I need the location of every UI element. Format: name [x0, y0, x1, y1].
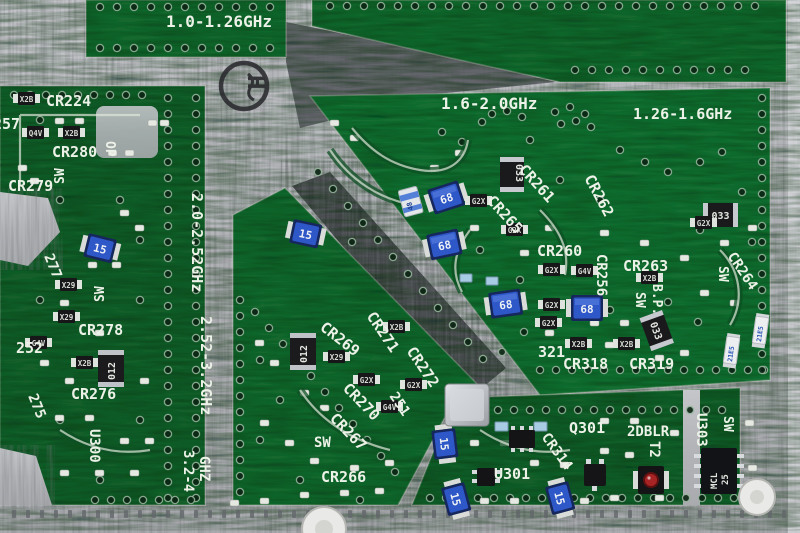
chip-marking-code: G2X [697, 219, 711, 228]
ref-252: 252 [16, 339, 43, 357]
solder-pad [530, 460, 539, 466]
solder-pad [385, 460, 394, 466]
via [164, 110, 171, 117]
via [164, 318, 171, 325]
ref-u301: U301 [494, 465, 530, 483]
ref-sw: SW [632, 292, 647, 308]
edge-plating-dash [26, 510, 30, 518]
via [164, 126, 171, 133]
via [748, 238, 755, 245]
via [266, 44, 273, 51]
small-cap [534, 422, 547, 431]
via [712, 366, 719, 373]
solder-pad [520, 250, 529, 256]
edge-plating-dash [516, 510, 520, 518]
mcl-doubler-ic: MCL 25 [694, 448, 744, 494]
ic-marking: MCL [710, 472, 720, 489]
edge-plating-dash [544, 510, 548, 518]
solder-pad [748, 225, 757, 231]
via [113, 44, 120, 51]
via [656, 66, 663, 73]
band-label-ghz: GHZ [196, 456, 212, 481]
via [91, 496, 98, 503]
edge-plating-dash [110, 510, 114, 518]
cap-value: 68 [498, 298, 513, 313]
via [574, 406, 581, 413]
via [682, 494, 689, 501]
pcb-photograph: 68 68 68 68 15 15 [0, 0, 800, 533]
via [90, 91, 97, 98]
ref-cr276: CR276 [71, 385, 116, 403]
via [307, 372, 314, 379]
via [198, 3, 205, 10]
via [666, 494, 673, 501]
solder-pad [545, 330, 554, 336]
via [479, 2, 486, 9]
edge-plating-dash [390, 510, 394, 518]
via [639, 66, 646, 73]
via [616, 146, 623, 153]
via [164, 494, 171, 501]
ref-cr318: CR318 [563, 355, 608, 373]
chip-marking-code: Q4V [29, 129, 43, 138]
via [758, 206, 765, 213]
edge-plating-dash [96, 510, 100, 518]
via [618, 494, 625, 501]
via [479, 355, 486, 362]
cap-value: 15 [437, 437, 452, 452]
via [520, 328, 527, 335]
via [329, 185, 336, 192]
via [96, 44, 103, 51]
solder-pad [655, 495, 664, 501]
via [530, 2, 537, 9]
solder-pad [375, 488, 384, 494]
edge-plating-dash [726, 510, 730, 518]
edge-plating-dash [124, 510, 128, 518]
via [266, 3, 273, 10]
ref-u300: U300 [86, 429, 102, 463]
via [236, 424, 243, 431]
edge-plating-dash [488, 510, 492, 518]
chip-marking-code: X2B [572, 340, 586, 349]
via [638, 406, 645, 413]
via [136, 236, 143, 243]
chip-marking-code: X29 [330, 353, 344, 362]
small-cap [486, 277, 498, 285]
ref-cr279: CR279 [8, 177, 53, 195]
via [634, 494, 641, 501]
via [551, 108, 558, 115]
ref-321: 321 [538, 343, 565, 361]
via [164, 414, 171, 421]
via [192, 430, 199, 437]
solder-pad [745, 420, 754, 426]
solder-pad [605, 342, 614, 348]
ref-op: OP [102, 141, 117, 157]
capacitor-68: 68 [566, 295, 608, 321]
ref-sw: SW [53, 168, 68, 184]
edge-plating-dash [404, 510, 408, 518]
chip-marking-code: G2X [545, 266, 559, 275]
via [394, 2, 401, 9]
plate-edge-highlight [788, 0, 800, 533]
via [666, 2, 673, 9]
ic-marking: 25 [721, 474, 731, 485]
via [428, 2, 435, 9]
via [96, 3, 103, 10]
solder-pad [330, 120, 339, 126]
ref-sw: SW [715, 266, 730, 282]
edge-plating-dash [670, 510, 674, 518]
ref-t2: T2 [646, 441, 662, 458]
via [566, 103, 573, 110]
ref-q301: Q301 [569, 419, 605, 437]
solder-pad [95, 470, 104, 476]
solder-pad [270, 360, 279, 366]
via [649, 2, 656, 9]
edge-plating-dash [782, 510, 786, 518]
inspection-stamp: H [221, 63, 270, 109]
via [232, 44, 239, 51]
via [192, 174, 199, 181]
via [192, 110, 199, 117]
edge-plating-dash [600, 510, 604, 518]
via [164, 366, 171, 373]
edge-plating-dash [194, 510, 198, 518]
via [130, 3, 137, 10]
solder-pad [610, 495, 619, 501]
ref-sw: SW [93, 286, 108, 302]
ref-cr319: CR319 [629, 355, 674, 373]
chip-marking-code: G2X [407, 381, 421, 390]
via [164, 206, 171, 213]
ref-sw: SW [314, 435, 331, 451]
solder-pad [700, 290, 709, 296]
via [181, 44, 188, 51]
via [641, 158, 648, 165]
via [296, 476, 303, 483]
via [236, 488, 243, 495]
edge-plating-dash [502, 510, 506, 518]
via [198, 44, 205, 51]
via [700, 2, 707, 9]
edge-plating-dash [152, 510, 156, 518]
via [615, 2, 622, 9]
ref-cr280: CR280 [52, 143, 97, 161]
via [758, 286, 765, 293]
solder-pad [600, 448, 609, 454]
solder-pad [470, 440, 479, 446]
via [598, 2, 605, 9]
via [147, 44, 154, 51]
edge-plating-dash [250, 510, 254, 518]
solder-pad [40, 360, 49, 366]
via [164, 44, 171, 51]
via [758, 158, 765, 165]
edge-plating-dash [166, 510, 170, 518]
via [744, 366, 751, 373]
via [130, 44, 137, 51]
chip-marking-code: G2X [472, 197, 486, 206]
via [758, 254, 765, 261]
edge-plating-dash [628, 510, 632, 518]
solder-pad [120, 438, 129, 444]
via [547, 2, 554, 9]
edge-plating-dash [586, 510, 590, 518]
via [164, 350, 171, 357]
via [116, 196, 123, 203]
solder-pad [625, 452, 634, 458]
via [526, 136, 533, 143]
via [344, 202, 351, 209]
via [249, 3, 256, 10]
solder-pad [255, 340, 264, 346]
via [741, 66, 748, 73]
via [236, 408, 243, 415]
edge-plating-dash [432, 510, 436, 518]
via [164, 398, 171, 405]
edge-plating-dash [362, 510, 366, 518]
via [696, 158, 703, 165]
edge-plating-dash [684, 510, 688, 518]
via [236, 440, 243, 447]
via [690, 66, 697, 73]
small-cap [460, 274, 472, 282]
via [434, 304, 441, 311]
via [348, 238, 355, 245]
solder-pad [85, 415, 94, 421]
via [602, 494, 609, 501]
chip-marking-code: G2X [542, 319, 556, 328]
solder-pad [470, 225, 479, 231]
solder-pad [135, 225, 144, 231]
solder-pad [75, 118, 84, 124]
standoff-center [750, 490, 764, 504]
resistor-012: 012 [98, 350, 124, 387]
via [738, 188, 745, 195]
via [522, 494, 529, 501]
via [758, 174, 765, 181]
chip-marking-code: G2X [360, 376, 374, 385]
via [654, 406, 661, 413]
via [164, 382, 171, 389]
via [490, 494, 497, 501]
via [411, 2, 418, 9]
via [462, 2, 469, 9]
via [510, 406, 517, 413]
via [680, 366, 687, 373]
edge-plating-dash [698, 510, 702, 518]
via [249, 44, 256, 51]
via [96, 476, 103, 483]
edge-plating-dash [12, 510, 16, 518]
solder-pad [65, 378, 74, 384]
via [758, 190, 765, 197]
via [136, 296, 143, 303]
via [236, 472, 243, 479]
ref-cr260: CR260 [537, 242, 582, 260]
via [164, 254, 171, 261]
ref-257: 257 [0, 115, 20, 133]
edge-plating-dash [222, 510, 226, 518]
edge-plating-dash [712, 510, 716, 518]
via [516, 276, 523, 283]
via [717, 2, 724, 9]
via [513, 2, 520, 9]
solder-pad [260, 498, 269, 504]
via [164, 478, 171, 485]
via [734, 2, 741, 9]
edge-plating-dash [278, 510, 282, 518]
ref-cr263: CR263 [623, 257, 668, 275]
band-label-1.0-1.26: 1.0-1.26GHz [166, 12, 272, 31]
stamp-glyph: H [242, 75, 270, 89]
via [256, 436, 263, 443]
via [113, 3, 120, 10]
ref-u303: U303 [693, 413, 709, 447]
via [714, 494, 721, 501]
via [236, 328, 243, 335]
via [419, 287, 426, 294]
via [758, 302, 765, 309]
via [538, 494, 545, 501]
via [498, 348, 505, 355]
via [164, 270, 171, 277]
solder-pad [680, 350, 689, 356]
via [236, 296, 243, 303]
doubler-label: 2DBLR [627, 424, 670, 440]
via [236, 392, 243, 399]
chip-marking-code: X29 [60, 313, 74, 322]
via [496, 2, 503, 9]
via [557, 120, 564, 127]
via [758, 94, 765, 101]
via [670, 406, 677, 413]
via [758, 142, 765, 149]
chip-marking-code: X2B [78, 359, 92, 368]
solder-pad [145, 438, 154, 444]
via [449, 321, 456, 328]
via [326, 2, 333, 9]
via [192, 142, 199, 149]
via [698, 494, 705, 501]
via [343, 2, 350, 9]
via [590, 406, 597, 413]
edge-plating-dash [180, 510, 184, 518]
ref-cr256: CR256 [593, 254, 609, 296]
via [718, 148, 725, 155]
via [164, 94, 171, 101]
edge-plating-dash [208, 510, 212, 518]
via [215, 44, 222, 51]
via [683, 2, 690, 9]
solder-pad [88, 262, 97, 268]
via [664, 298, 671, 305]
chip-marking-code: X2B [65, 129, 79, 138]
via [107, 496, 114, 503]
via [164, 174, 171, 181]
via [464, 338, 471, 345]
via [181, 3, 188, 10]
solder-pad [120, 210, 129, 216]
via [164, 334, 171, 341]
edge-plating-dash [40, 510, 44, 518]
via [606, 406, 613, 413]
via [279, 340, 286, 347]
solder-pad [148, 120, 157, 126]
edge-plating-dash [264, 510, 268, 518]
via [426, 494, 433, 501]
via [536, 366, 543, 373]
via [494, 406, 501, 413]
edge-plating-dash [292, 510, 296, 518]
solder-pad [680, 255, 689, 261]
via [192, 126, 199, 133]
via [758, 222, 765, 229]
via [758, 270, 765, 277]
cap-value: 68 [437, 238, 453, 253]
via [389, 253, 396, 260]
via [751, 2, 758, 9]
via [147, 3, 154, 10]
solder-pad [60, 470, 69, 476]
via [374, 236, 381, 243]
via [164, 302, 171, 309]
edge-plating-dash [530, 510, 534, 518]
edge-plating-dash [236, 510, 240, 518]
via [192, 414, 199, 421]
via [164, 158, 171, 165]
chip-marking-code: X2B [643, 274, 657, 283]
via [694, 318, 701, 325]
via [321, 388, 328, 395]
solder-pad [580, 498, 589, 504]
solder-pad [620, 320, 629, 326]
via [588, 66, 595, 73]
via [164, 238, 171, 245]
via [758, 238, 765, 245]
via [377, 2, 384, 9]
via [518, 113, 525, 120]
via [730, 494, 737, 501]
edge-plating-dash [54, 510, 58, 518]
solder-pad [260, 420, 269, 426]
via [236, 360, 243, 367]
via [696, 366, 703, 373]
solder-pad [55, 415, 64, 421]
band-label-2.0-2.52: 2.0-2.52GHz [188, 193, 206, 292]
edge-plating-dash [418, 510, 422, 518]
ref-bp: B.P. [649, 284, 664, 315]
via [391, 468, 398, 475]
via [552, 366, 559, 373]
via [164, 446, 171, 453]
via [542, 406, 549, 413]
via [56, 196, 63, 203]
via [164, 286, 171, 293]
via [236, 344, 243, 351]
edge-plating-dash [82, 510, 86, 518]
pcb-photo-stage: 68 68 68 68 15 15 [0, 0, 800, 533]
via [632, 2, 639, 9]
chip-marking-code: X2B [20, 95, 34, 104]
via [164, 190, 171, 197]
via [36, 116, 43, 123]
edge-plating-dash [68, 510, 72, 518]
edge-plating-dash [138, 510, 142, 518]
via [36, 296, 43, 303]
